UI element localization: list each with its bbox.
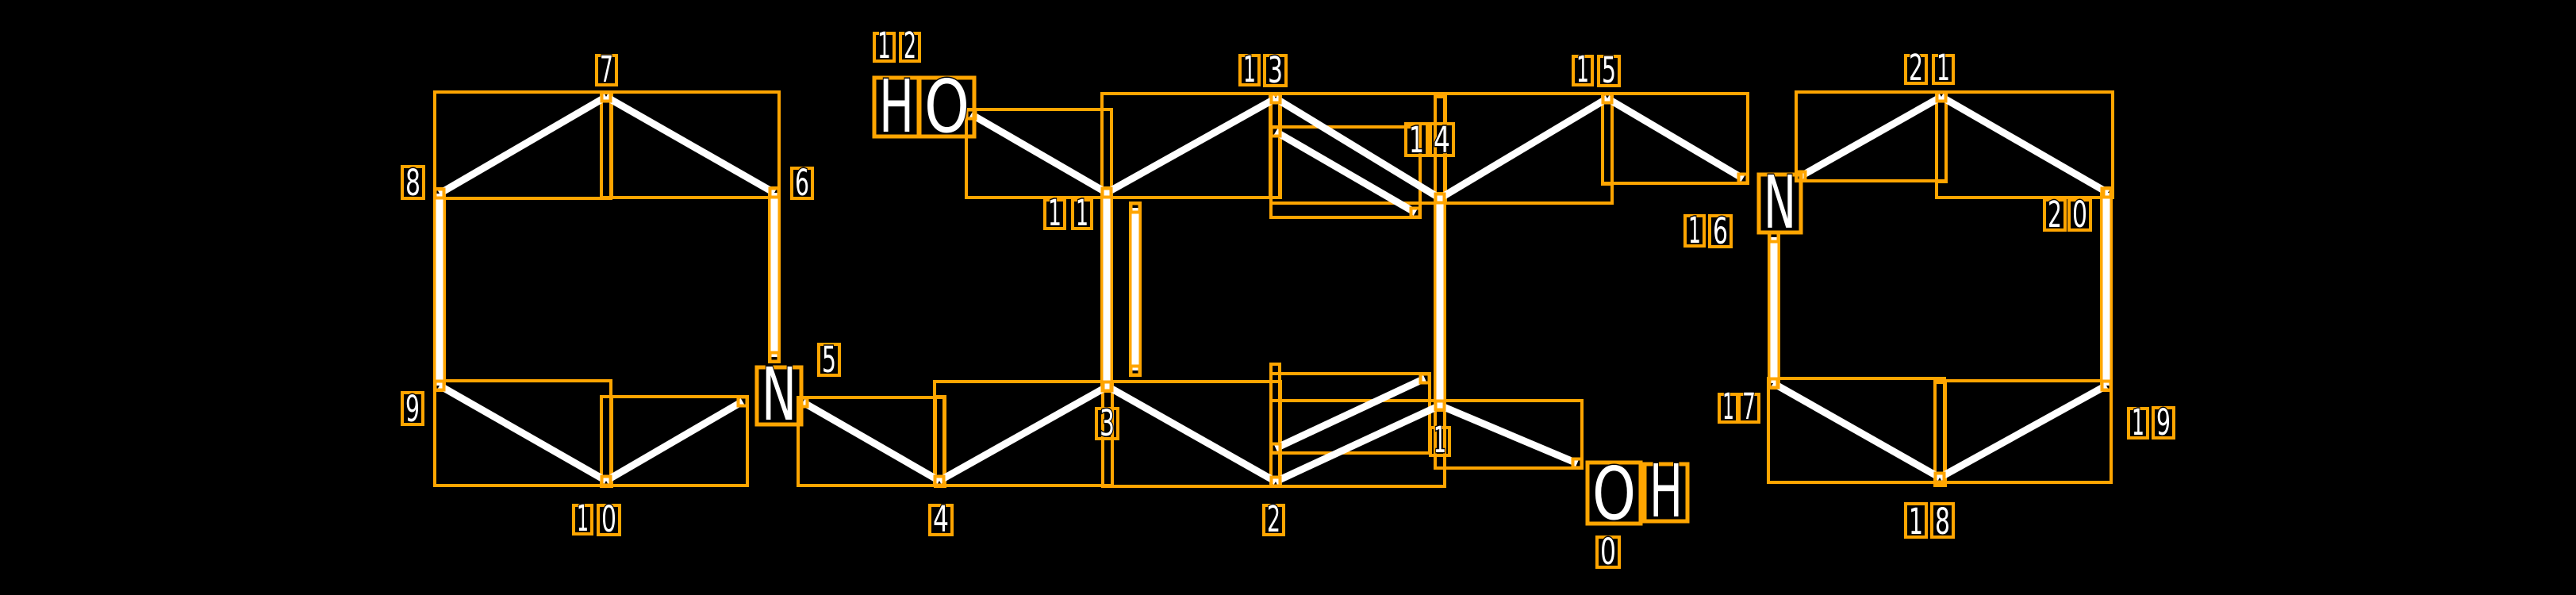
atom-index-digit-13-0: 1 <box>1243 48 1256 90</box>
atom-index-digit-16-1: 6 <box>1713 210 1728 252</box>
atom-index-digit-18-0: 1 <box>1909 501 1923 543</box>
endpoint-marker-layer <box>436 93 2113 486</box>
bond-line-16-21 <box>1801 97 1941 176</box>
atom-symbol-12-1: O <box>924 64 969 149</box>
bond-line-21-20 <box>1941 97 2108 193</box>
bond-line-1-2 <box>1276 405 1440 482</box>
atom-index-digit-17-1: 7 <box>1742 386 1756 428</box>
bond-line-7-6 <box>606 97 774 193</box>
atom-index-digit-19-0: 1 <box>2132 401 2144 443</box>
atom-index-digit-3-0: 3 <box>1100 402 1115 444</box>
atom-symbol-0-1: H <box>1649 449 1683 534</box>
atom-index-digit-11-0: 1 <box>1048 192 1061 234</box>
atom-index-digit-2-0: 2 <box>1267 498 1280 540</box>
atom-index-digit-0-0: 0 <box>1600 531 1616 573</box>
bond-line-14-15 <box>1440 98 1607 198</box>
bond-line-11-12 <box>971 114 1107 193</box>
atom-index-digit-12-1: 2 <box>904 25 916 67</box>
atom-index-digit-8-0: 8 <box>405 162 420 204</box>
atom-symbol-12-0: H <box>879 64 914 149</box>
atom-index-digit-21-0: 2 <box>1909 47 1923 89</box>
implicit-h-box-atom-10 <box>601 397 612 486</box>
bond-line-2-3 <box>1108 386 1276 482</box>
atom-index-digit-18-1: 8 <box>1935 501 1950 543</box>
implicit-h-box-atom-4 <box>935 397 945 486</box>
bond-line-5-4 <box>803 402 939 481</box>
atom-index-digit-15-1: 5 <box>1602 49 1616 91</box>
atom-index-digit-19-1: 9 <box>2156 401 2171 443</box>
atom-symbol-5-0: N <box>762 352 797 437</box>
bond-box-layer <box>435 92 2113 486</box>
atom-index-digit-6-0: 6 <box>795 162 809 204</box>
atom-index-digit-4-0: 4 <box>933 498 949 540</box>
atom-index-digit-10-1: 0 <box>601 498 616 540</box>
bond-line-1-0 <box>1440 405 1577 463</box>
bond-line-18-19 <box>1940 386 2106 478</box>
bond-line-8-7 <box>440 97 606 194</box>
atom-index-digit-20-1: 0 <box>2072 194 2087 236</box>
atom-index-digit-17-0: 1 <box>1722 386 1734 428</box>
bond-line-17-18 <box>1773 383 1940 478</box>
atom-index-digit-7-0: 7 <box>600 48 613 90</box>
bond-line-4-3 <box>939 386 1108 481</box>
bond-line-9-10 <box>440 386 606 481</box>
molecule-annotation-canvas: NHONOH 012345678910111213141516171819202… <box>0 0 2576 595</box>
bond-line-15-16 <box>1607 98 1743 178</box>
atom-index-digit-14-0: 1 <box>1409 119 1424 161</box>
annotated-molecule-image: NHONOH 012345678910111213141516171819202… <box>0 0 2576 595</box>
implicit-h-box-atom-21 <box>1937 92 1946 182</box>
atom-index-digit-10-0: 1 <box>577 497 589 539</box>
atom-index-digit-1-0: 1 <box>1434 419 1446 461</box>
atom-symbol-16-0: N <box>1764 160 1796 245</box>
bond-line-1-2-inner <box>1276 378 1425 448</box>
atom-index-digit-21-1: 1 <box>1937 47 1950 89</box>
atom-index-digit-12-0: 1 <box>877 25 891 67</box>
bond-line-11-13 <box>1107 98 1276 193</box>
atom-index-digit-11-1: 1 <box>1076 192 1088 234</box>
atom-index-digit-16-0: 1 <box>1688 209 1701 251</box>
implicit-h-box-atom-7 <box>601 93 612 198</box>
atom-index-digit-20-0: 2 <box>2048 194 2062 236</box>
implicit-h-box-atom-15 <box>1603 94 1612 184</box>
atom-index-digit-15-0: 1 <box>1576 48 1589 90</box>
atom-index-digit-5-0: 5 <box>822 339 836 381</box>
bond-line-layer <box>440 97 2108 482</box>
atom-index-digit-14-1: 4 <box>1434 119 1450 161</box>
atom-symbol-0-0: O <box>1592 451 1636 536</box>
atom-index-digit-13-1: 3 <box>1268 49 1283 91</box>
bond-line-10-5 <box>606 401 743 481</box>
implicit-h-box-atom-18 <box>1935 382 1945 486</box>
implicit-h-box-atom-13 <box>1270 95 1280 198</box>
atom-index-digit-9-0: 9 <box>405 388 420 430</box>
